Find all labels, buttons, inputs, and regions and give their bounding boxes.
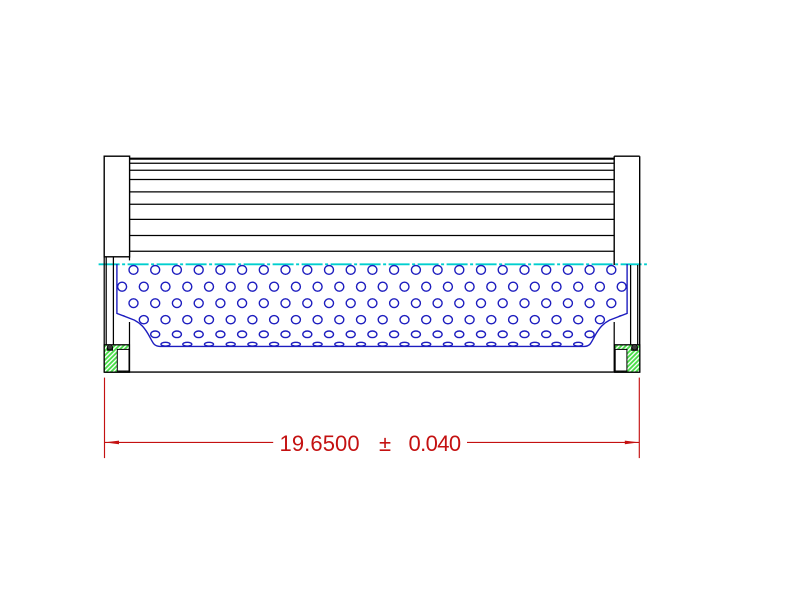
svg-text:0.040: 0.040 <box>409 431 461 456</box>
svg-text:±: ± <box>379 431 391 456</box>
svg-text:19.6500: 19.6500 <box>280 431 360 456</box>
